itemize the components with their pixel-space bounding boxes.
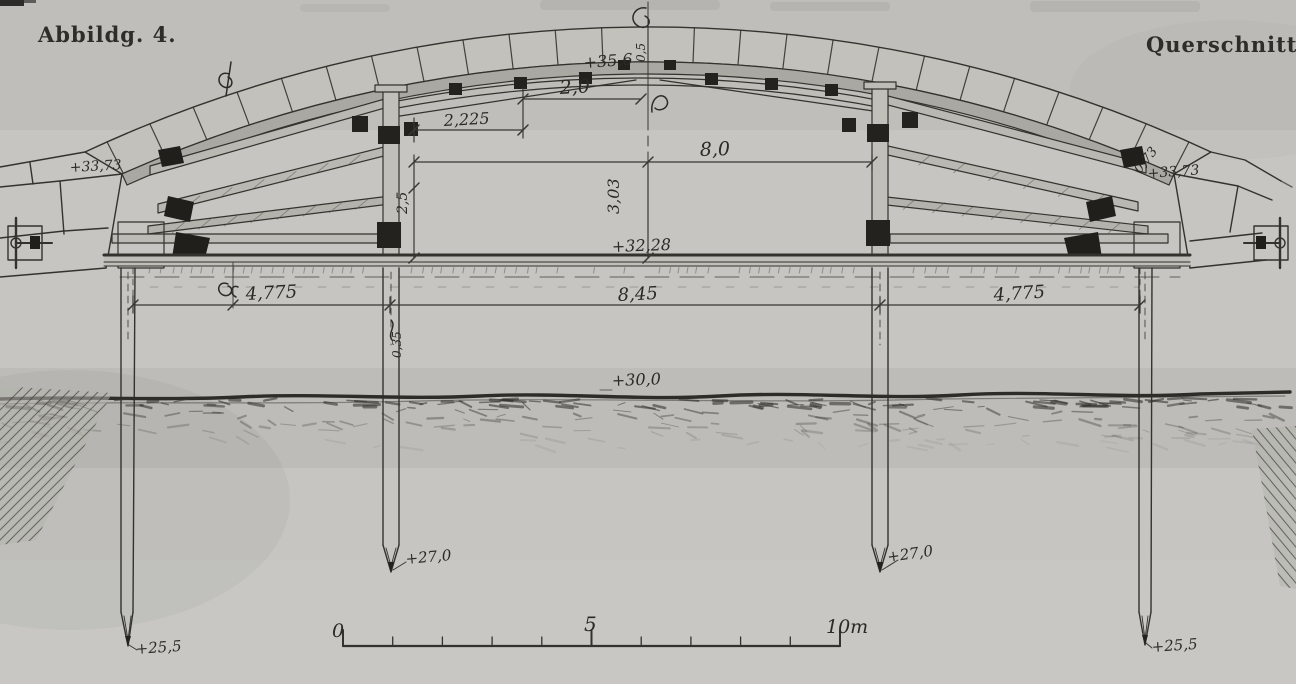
dim-8-0-label: 8,0 — [699, 138, 730, 161]
bay-center-label: 8,45 — [617, 283, 658, 306]
scale-five-label: 5 — [584, 612, 597, 636]
bay-right-label: 4,775 — [992, 281, 1046, 306]
figure-label: Abbildg. 4. — [37, 22, 177, 47]
scale-zero-label: 0 — [332, 620, 344, 642]
dim-2-225-label: 2,225 — [442, 109, 490, 130]
pile-outer-right-label: +25,5 — [1151, 635, 1198, 656]
platform-elevation-label: +32,28 — [611, 235, 671, 256]
view-title: Querschnitt. — [1146, 32, 1296, 57]
ground-elevation-label: +30,0 — [611, 369, 661, 390]
bay-left-label: 4,775 — [244, 281, 298, 305]
bridge-cross-section-drawing: Abbildg. 4. Querschnitt. +35,6 0,5 2,0 2… — [0, 0, 1296, 684]
dim-2-5-label: 2,5 — [395, 192, 411, 215]
dim-3-03-label: 3,03 — [604, 178, 623, 214]
springing-left-label: +33,73 — [69, 157, 122, 176]
scan-corner-artifact — [0, 0, 24, 6]
scale-ten-label: 10m — [826, 616, 868, 638]
crown-elevation-label: +35,6 — [583, 50, 633, 72]
crown-packing-label: 0,5 — [634, 43, 648, 62]
scanned-book-page: Abbildg. 4. Querschnitt. +35,6 0,5 2,0 2… — [0, 0, 1296, 684]
pile-width-label: 0,35 — [390, 331, 404, 358]
pile-outer-left-label: +25,5 — [135, 637, 182, 658]
dim-2-0-label: 2,0 — [558, 75, 590, 99]
